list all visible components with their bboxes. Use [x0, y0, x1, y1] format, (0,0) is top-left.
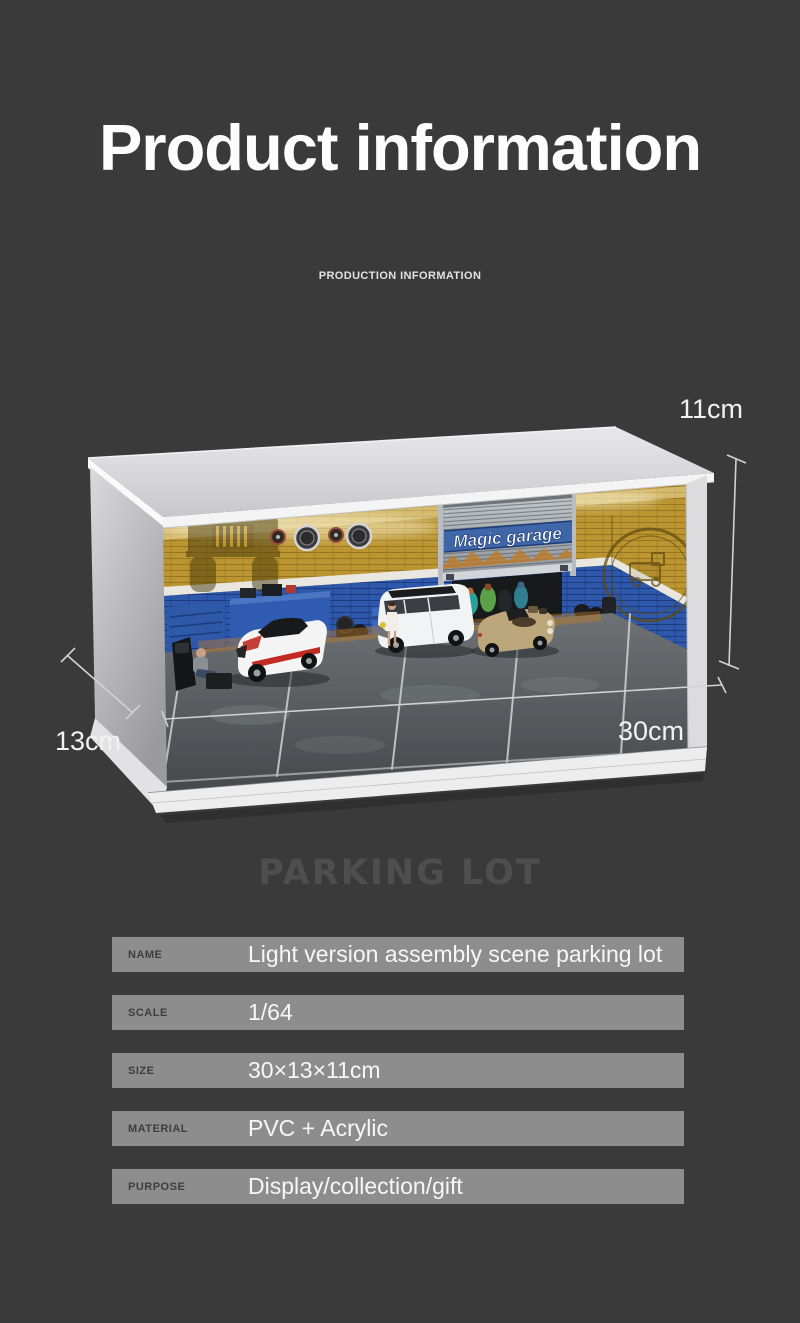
spec-row-material: MATERIAL PVC + Acrylic — [112, 1111, 684, 1146]
spec-value: Display/collection/gift — [248, 1173, 463, 1200]
spec-value: Light version assembly scene parking lot — [248, 941, 662, 968]
spec-value: PVC + Acrylic — [248, 1115, 388, 1142]
case-right-pillar — [686, 475, 707, 756]
spec-value: 30×13×11cm — [248, 1057, 381, 1084]
spec-table: NAME Light version assembly scene parkin… — [112, 937, 684, 1227]
page-subtitle: PRODUCTION INFORMATION — [0, 270, 800, 282]
spec-label: NAME — [112, 949, 248, 961]
height-dimension-label: 11cm — [679, 394, 743, 424]
width-dimension-label: 30cm — [618, 716, 684, 746]
depth-dimension-label: 13cm — [55, 726, 121, 756]
page-title: Product information — [0, 112, 800, 184]
spec-row-purpose: PURPOSE Display/collection/gift — [112, 1169, 684, 1204]
spec-row-size: SIZE 30×13×11cm — [112, 1053, 684, 1088]
section-heading: PARKING LOT — [0, 853, 800, 893]
product-info-page: Product information PRODUCTION INFORMATI… — [0, 0, 800, 1323]
spec-label: PURPOSE — [112, 1181, 248, 1193]
spec-row-scale: SCALE 1/64 — [112, 995, 684, 1030]
spec-label: SIZE — [112, 1065, 248, 1077]
spec-label: SCALE — [112, 1007, 248, 1019]
spec-row-name: NAME Light version assembly scene parkin… — [112, 937, 684, 972]
garage-diorama-illustration: KINCHES — [0, 385, 800, 825]
product-photo: KINCHES — [0, 385, 800, 825]
spec-label: MATERIAL — [112, 1123, 248, 1135]
spec-value: 1/64 — [248, 999, 293, 1026]
